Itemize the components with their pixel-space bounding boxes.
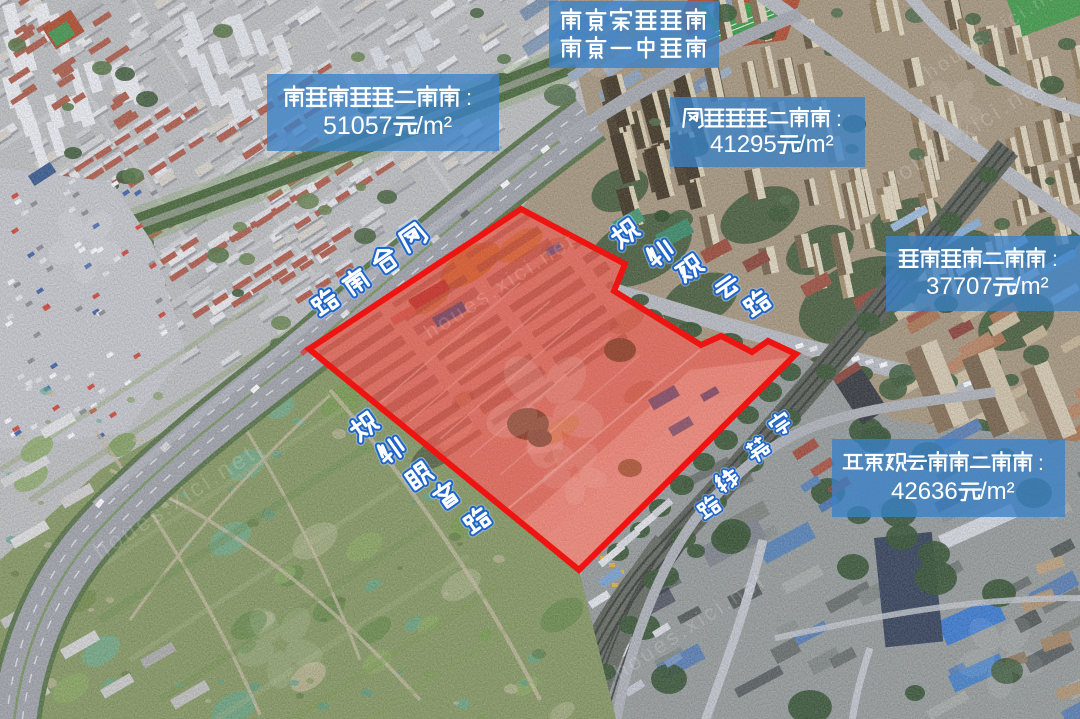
svg-text:/m²: /m² [416,112,452,140]
svg-text:37707: 37707 [926,273,993,300]
svg-text::: : [466,85,472,110]
svg-text:/m²: /m² [799,131,834,158]
svg-text:/m²: /m² [980,478,1015,505]
svg-text:51057: 51057 [323,112,393,140]
svg-text:41295: 41295 [710,131,777,158]
svg-text:42636: 42636 [891,478,958,505]
svg-text::: : [1052,248,1058,271]
svg-text:/m²: /m² [1014,273,1049,300]
svg-text::: : [1038,452,1044,475]
svg-text::: : [836,108,842,131]
